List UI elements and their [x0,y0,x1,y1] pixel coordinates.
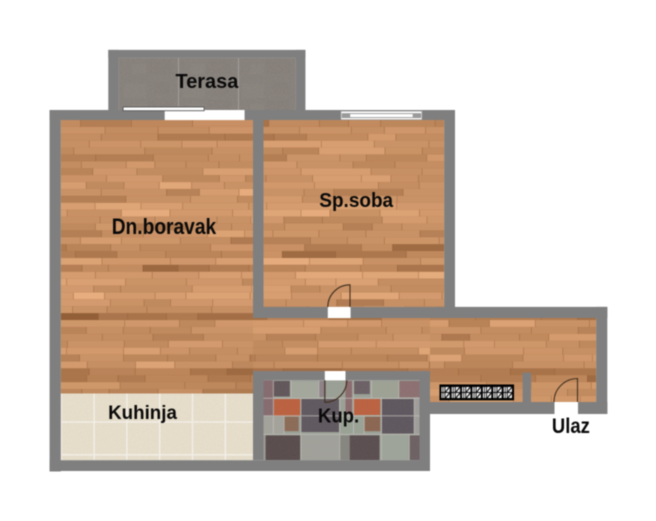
svg-text:Sp.soba: Sp.soba [319,189,393,212]
svg-text:Kup.: Kup. [318,406,359,428]
svg-text:Dn.boravak: Dn.boravak [112,214,217,239]
svg-text:Kuhinja: Kuhinja [108,402,177,424]
svg-text:Ulaz: Ulaz [552,415,590,438]
svg-text:Terasa: Terasa [176,70,239,93]
